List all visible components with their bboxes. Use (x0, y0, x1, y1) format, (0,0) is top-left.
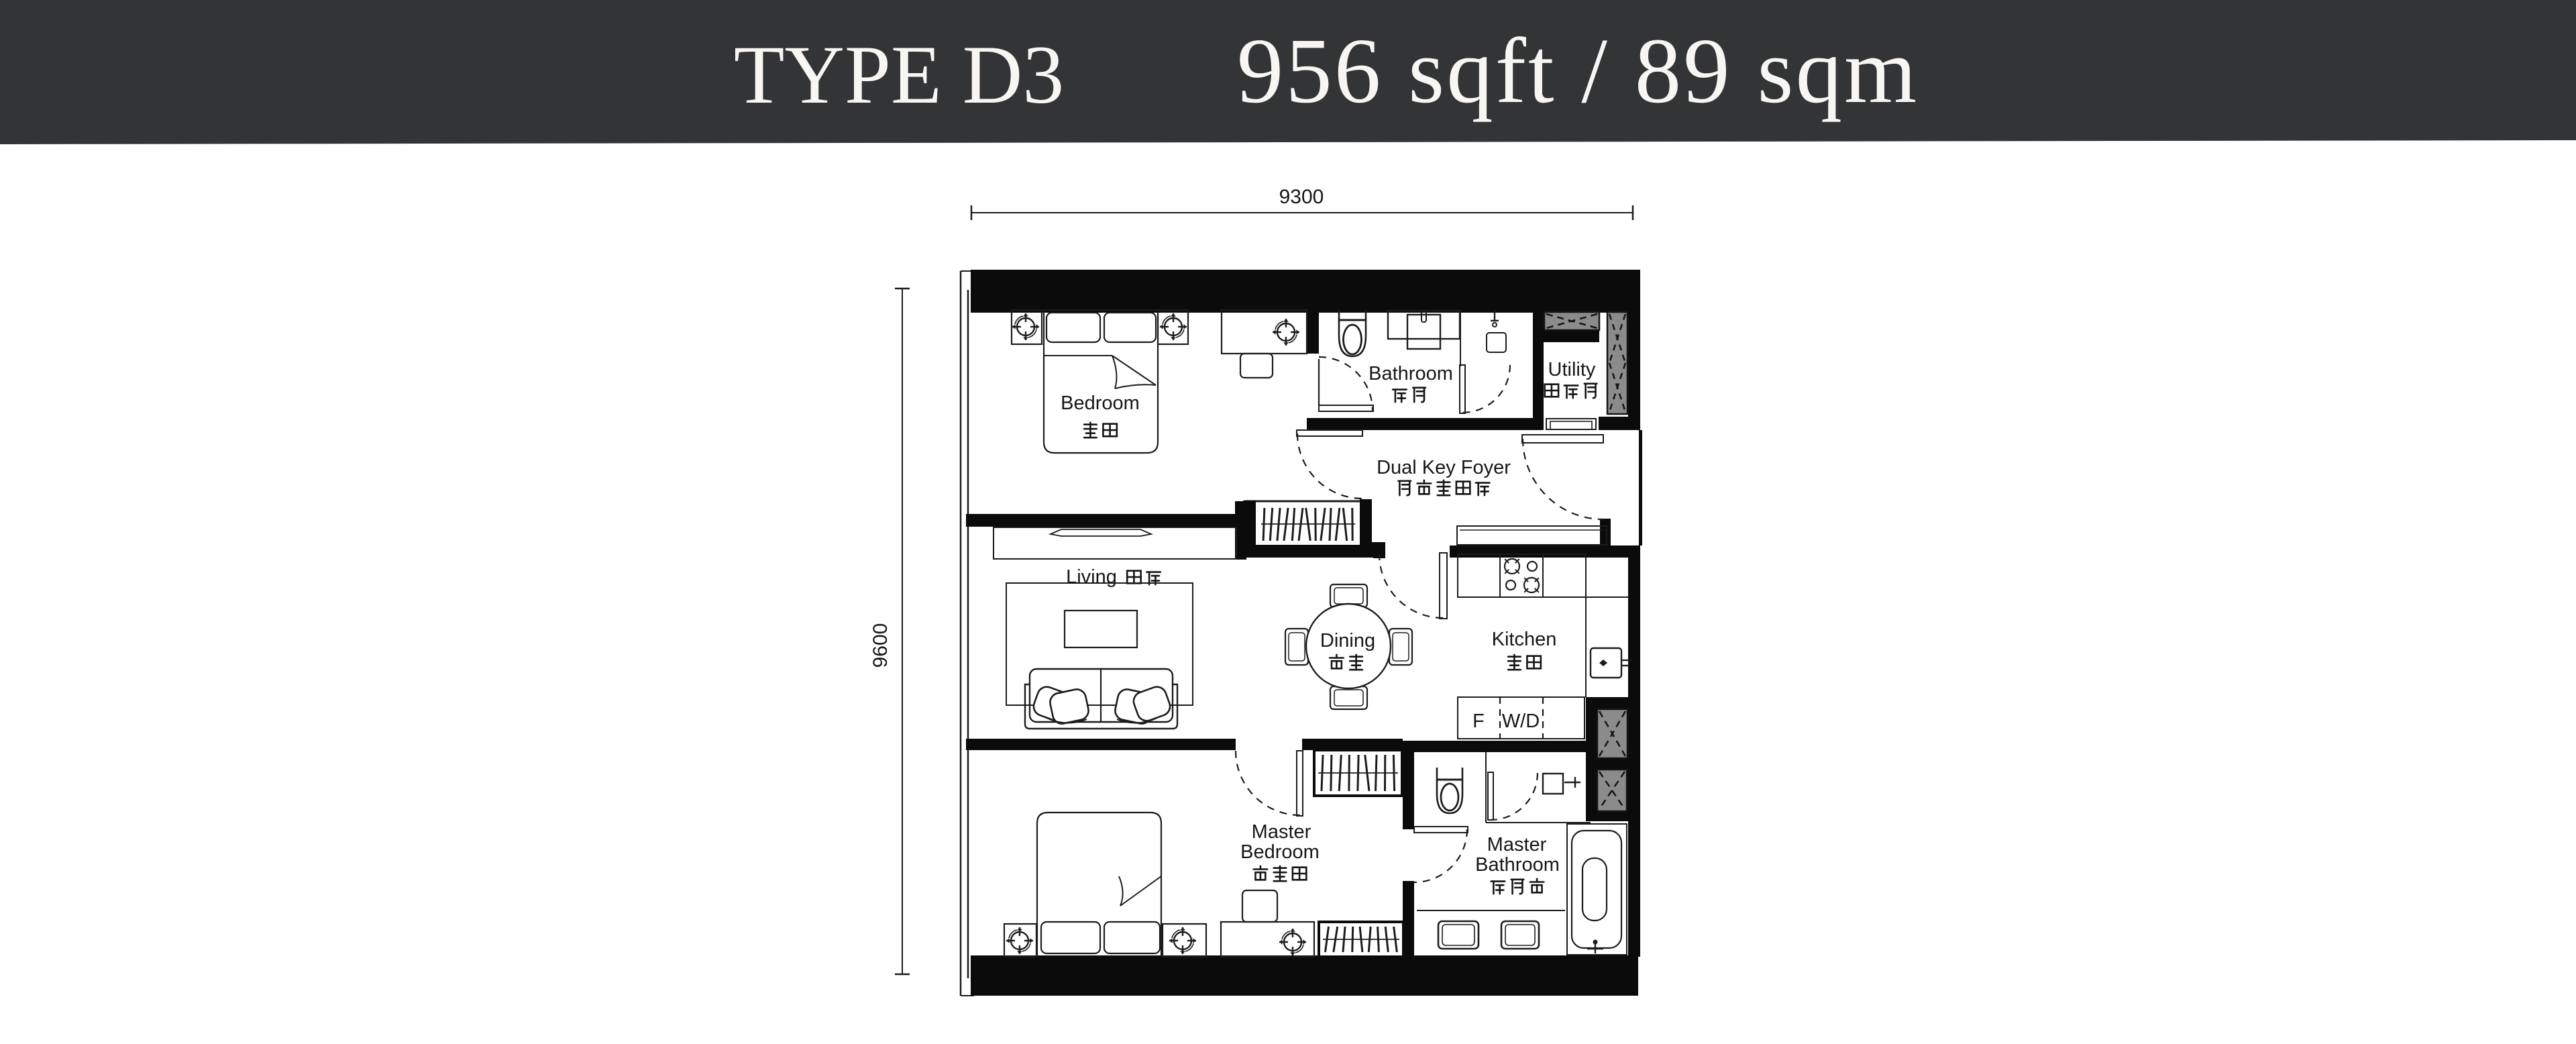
svg-text:Dual Key Foyer: Dual Key Foyer (1377, 457, 1511, 478)
svg-text:Utility: Utility (1548, 359, 1596, 380)
svg-text:Bathroom: Bathroom (1368, 363, 1453, 384)
svg-text:9300: 9300 (1279, 186, 1324, 208)
svg-text:Bedroom: Bedroom (1061, 393, 1140, 414)
svg-text:9600: 9600 (869, 623, 892, 668)
svg-text:Bedroom: Bedroom (1240, 841, 1320, 863)
svg-text:Master: Master (1252, 821, 1311, 843)
svg-text:Living: Living (1066, 566, 1117, 588)
svg-text:TYPE D3: TYPE D3 (734, 29, 1065, 121)
svg-text:Kitchen: Kitchen (1492, 629, 1557, 650)
svg-text:Dining: Dining (1320, 630, 1375, 651)
svg-text:W/D: W/D (1502, 711, 1540, 732)
svg-text:Master: Master (1487, 834, 1547, 855)
svg-text:956 sqft / 89 sqm: 956 sqft / 89 sqm (1237, 19, 1919, 123)
svg-text:F: F (1472, 711, 1485, 732)
svg-text:Bathroom: Bathroom (1475, 854, 1560, 876)
